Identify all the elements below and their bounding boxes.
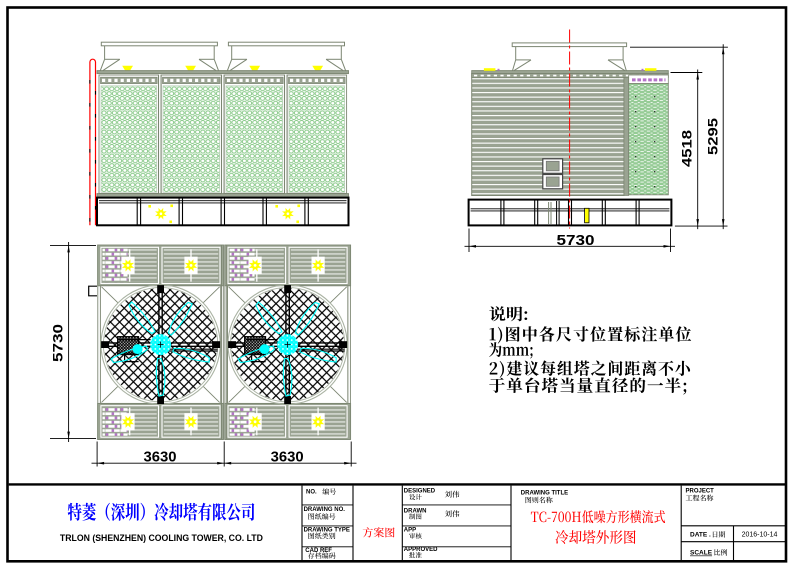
svg-text:3630: 3630 [271,449,304,465]
svg-text:5730: 5730 [557,233,595,249]
svg-text:3630: 3630 [144,449,177,465]
svg-text:5730: 5730 [50,324,66,362]
svg-text:DATE .: DATE . [690,532,711,539]
svg-text:DRAWING NO.: DRAWING NO. [304,507,346,513]
svg-text:5295: 5295 [705,118,721,155]
svg-text:DRAWING TITLE: DRAWING TITLE [521,490,568,496]
svg-text:APP: APP [404,528,416,534]
svg-text:SCALE: SCALE [690,550,713,557]
svg-text:CAD REF: CAD REF [305,548,332,554]
svg-text:4518: 4518 [679,130,695,167]
svg-text:PROJECT: PROJECT [686,489,715,495]
svg-text:TRLON (SHENZHEN) COOLING TOWER: TRLON (SHENZHEN) COOLING TOWER, CO. LTD [60,533,263,544]
svg-text:NO.: NO. [306,489,317,495]
svg-text:DRAWING TYPE: DRAWING TYPE [304,527,350,533]
svg-text:DESIGNED: DESIGNED [404,489,436,495]
svg-text:2016-10-14: 2016-10-14 [742,531,778,538]
svg-text:APPROVED: APPROVED [404,547,438,553]
svg-text:DRAWN: DRAWN [404,508,427,514]
